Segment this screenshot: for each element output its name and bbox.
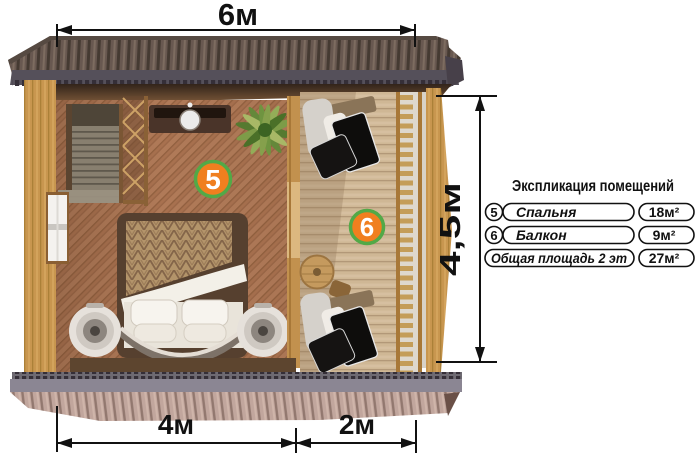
svg-text:6м: 6м — [218, 0, 258, 32]
svg-text:6: 6 — [360, 212, 374, 242]
svg-text:27м²: 27м² — [649, 250, 680, 266]
svg-text:18м²: 18м² — [649, 204, 680, 220]
svg-text:4,5м: 4,5м — [435, 182, 467, 276]
svg-text:2м: 2м — [339, 409, 375, 440]
svg-text:4м: 4м — [158, 409, 194, 440]
svg-text:6: 6 — [490, 228, 497, 243]
svg-text:9м²: 9м² — [653, 227, 676, 243]
svg-text:Экспликация помещений: Экспликация помещений — [512, 178, 674, 195]
svg-text:5: 5 — [205, 164, 221, 195]
svg-text:Балкон: Балкон — [516, 227, 567, 243]
svg-text:5: 5 — [490, 205, 497, 220]
svg-text:Общая площадь 2 эт: Общая площадь 2 эт — [491, 250, 627, 266]
svg-text:Спальня: Спальня — [516, 204, 576, 220]
